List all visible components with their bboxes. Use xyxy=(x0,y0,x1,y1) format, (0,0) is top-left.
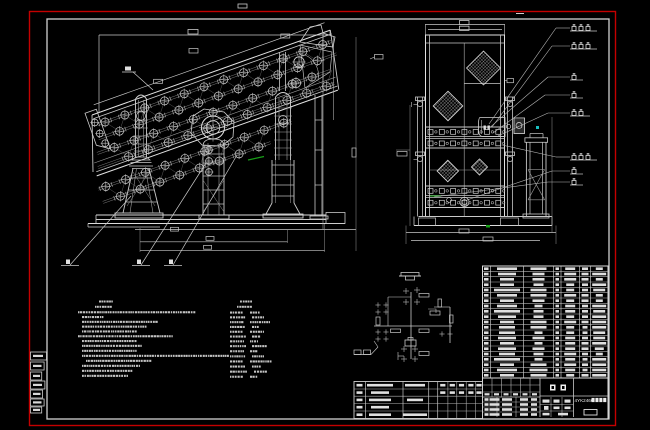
svg-text:4YK2460: 4YK2460 xyxy=(575,398,594,403)
